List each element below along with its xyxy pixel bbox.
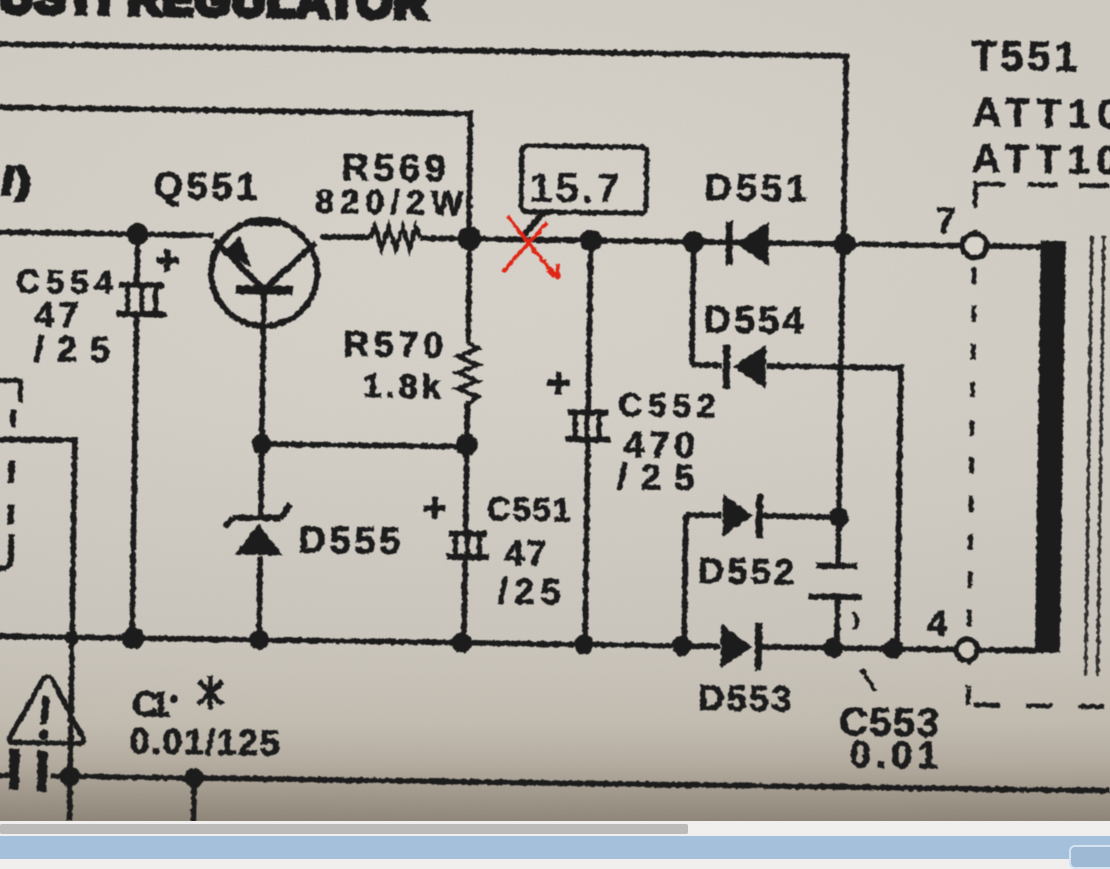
svg-text:Q551: Q551 xyxy=(153,165,258,208)
svg-text:C551: C551 xyxy=(487,490,572,528)
svg-text:D554: D554 xyxy=(703,299,804,342)
svg-text:0.01/125: 0.01/125 xyxy=(129,720,280,763)
svg-text:/25: /25 xyxy=(497,570,561,612)
svg-text:D553: D553 xyxy=(698,677,792,719)
svg-text:R570: R570 xyxy=(343,323,444,365)
svg-text:7: 7 xyxy=(936,199,957,240)
svg-text:ATT10: ATT10 xyxy=(972,91,1110,137)
svg-text:D551: D551 xyxy=(704,167,808,210)
svg-text:4: 4 xyxy=(927,602,948,643)
svg-text:0.01: 0.01 xyxy=(849,734,939,777)
svg-text:ATT10: ATT10 xyxy=(972,137,1110,183)
svg-text:C1: C1 xyxy=(132,683,171,725)
svg-text:D555: D555 xyxy=(298,519,401,562)
svg-text:D552: D552 xyxy=(698,550,795,592)
svg-text:T551: T551 xyxy=(971,32,1082,81)
svg-text:15.7: 15.7 xyxy=(529,164,622,212)
svg-text:1.8k: 1.8k xyxy=(362,367,441,406)
